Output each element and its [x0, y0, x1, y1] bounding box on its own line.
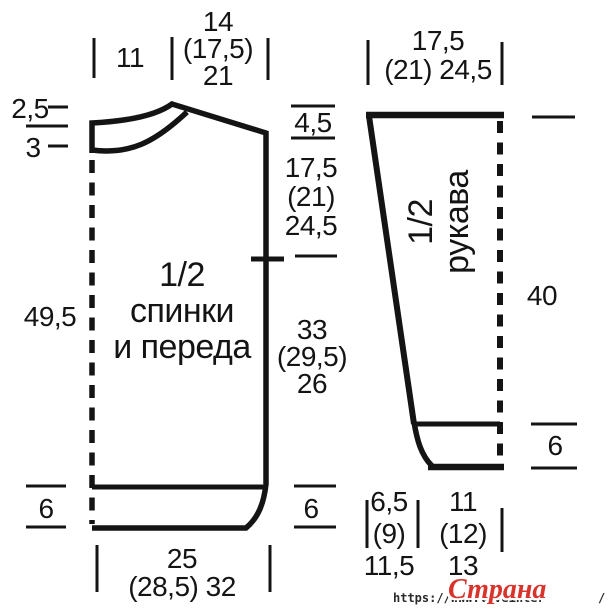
piece-title-line: спинки [113, 293, 251, 329]
measurement-value: (12) [439, 518, 487, 550]
armhole-depth-label: 17,5 (21) 24,5 [285, 153, 338, 240]
body-rib-height-right-label: 6 [303, 495, 318, 522]
measurement-value: 6 [303, 495, 318, 522]
body-bottom-width-label: 25 (28,5) 32 [128, 545, 236, 601]
sleeve-rib-height-label: 6 [547, 432, 562, 459]
measurement-value: 6 [38, 495, 53, 522]
measurement-value: (21) [285, 182, 338, 211]
piece-title-line: рукава [439, 170, 475, 274]
body-rib-height-left-label: 6 [38, 495, 53, 522]
measurement-value: 3 [25, 134, 40, 161]
measurement-value: (29,5) [277, 343, 347, 370]
measurement-value: 2,5 [11, 95, 48, 122]
sleeve-length-label: 40 [527, 282, 557, 309]
measurement-value: 17,5 [285, 153, 338, 182]
measurement-value: 17,5 [384, 26, 492, 55]
sleeve-cuff-width-b-label: 11 (12) 13 [439, 486, 487, 582]
measurement-value: 49,5 [24, 303, 77, 330]
measurement-value: (9) [364, 518, 414, 550]
sleeve-piece-title: 1/2 рукава [403, 170, 475, 274]
watermark-site-name: Страна Мам [448, 574, 610, 610]
measurement-value: 25 [128, 545, 236, 573]
sleeve-top-width-label: 17,5 (21) 24,5 [384, 26, 492, 84]
measurement-value: 11,5 [364, 550, 414, 582]
piece-title-line: 1/2 [403, 170, 439, 274]
body-shoulder-width-label: 11 [116, 44, 144, 71]
measurement-value: 11 [439, 486, 487, 518]
front-neck-depth-label: 3 [25, 134, 40, 161]
piece-title-line: 1/2 [113, 257, 251, 293]
sleeve-cuff-curve [414, 422, 432, 466]
measurement-value: 24,5 [285, 211, 338, 240]
shoulder-slope-label: 4,5 [294, 109, 331, 136]
body-top-width-label: 14 (17,5) 21 [183, 8, 253, 89]
measurement-value: 6 [547, 432, 562, 459]
sleeve-cuff-width-a-label: 6,5 (9) 11,5 [364, 486, 414, 582]
measurement-value: 14 [183, 8, 253, 35]
measurement-value: 40 [527, 282, 557, 309]
body-side-length-label: 49,5 [24, 303, 77, 330]
knitting-pattern-schematic: 14 (17,5) 21 11 2,5 3 49,5 4,5 17,5 (21)… [0, 0, 610, 610]
body-lower-length-label: 33 (29,5) 26 [277, 316, 347, 397]
body-piece-title: 1/2 спинки и переда [113, 257, 251, 365]
measurement-value: 11 [116, 44, 144, 71]
measurement-value: (17,5) [183, 35, 253, 62]
measurement-value: 26 [277, 370, 347, 397]
measurement-value: 33 [277, 316, 347, 343]
back-neck-depth-label: 2,5 [11, 95, 48, 122]
measurement-value: (21) 24,5 [384, 55, 492, 84]
measurement-value: 6,5 [364, 486, 414, 518]
piece-title-line: и переда [113, 329, 251, 365]
measurement-value: 21 [183, 62, 253, 89]
measurement-value: (28,5) 32 [128, 573, 236, 601]
measurement-value: 4,5 [294, 109, 331, 136]
